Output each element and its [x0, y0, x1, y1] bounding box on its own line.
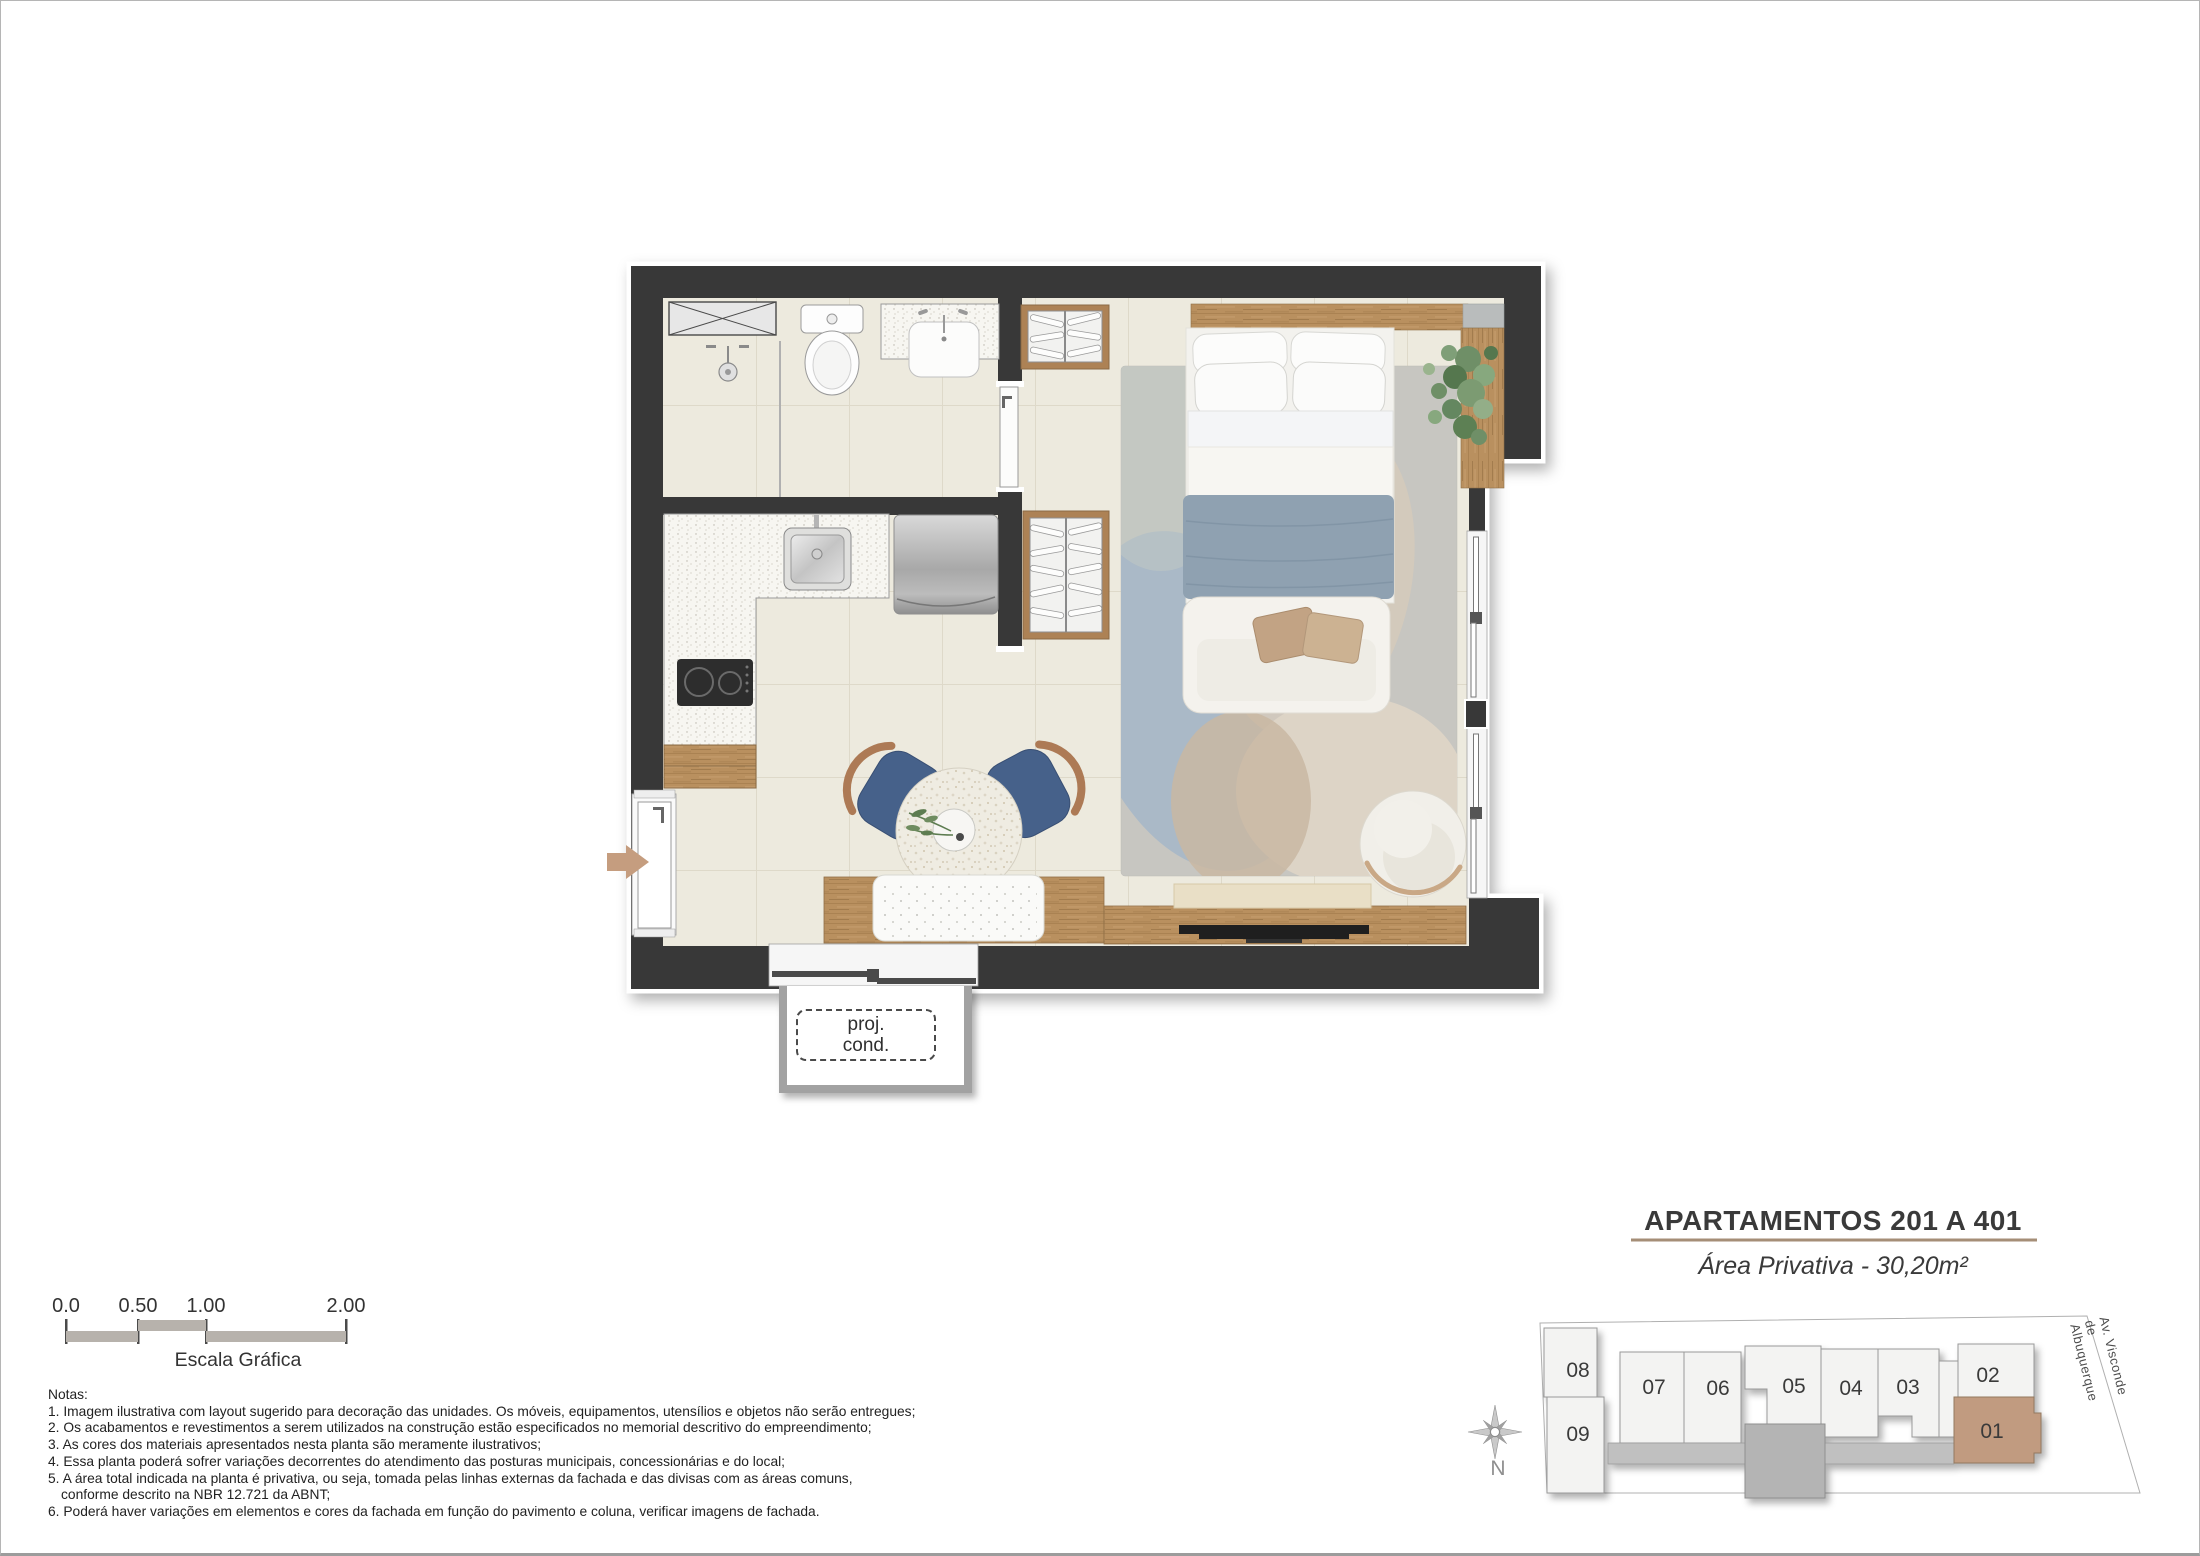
drawing-layer — [1, 1, 2200, 1556]
bedside-shelf — [1463, 304, 1504, 328]
note-line: 1. Imagem ilustrativa com layout sugerid… — [48, 1404, 1068, 1421]
vent-shaft — [669, 302, 776, 335]
note-line: 6. Poderá haver variações em elementos e… — [48, 1504, 1068, 1521]
tv-icon — [1179, 925, 1369, 934]
key-plan — [1540, 1316, 2140, 1498]
bed — [1183, 328, 1394, 603]
floor-plan — [631, 266, 1541, 989]
keyplan-unit-label-02: 02 — [1976, 1364, 1999, 1388]
table-vase — [933, 809, 975, 851]
notes-heading: Notas: — [48, 1387, 1068, 1404]
scale-bar-caption: Escala Gráfica — [175, 1349, 302, 1372]
keyplan-unit-label-09: 09 — [1566, 1423, 1589, 1447]
wardrobe-small — [1021, 305, 1109, 369]
keyplan-unit-label-06: 06 — [1706, 1377, 1729, 1401]
scale-bar-graphic — [65, 1319, 348, 1344]
note-line: 5. A área total indicada na planta é pri… — [48, 1471, 1068, 1488]
north-label: N — [1490, 1457, 1505, 1481]
compass-icon — [1468, 1405, 1522, 1459]
proj-line2: cond. — [843, 1035, 889, 1056]
page-title: APARTAMENTOS 201 A 401 — [1629, 1205, 2037, 1237]
note-line: 4. Essa planta poderá sofrer variações d… — [48, 1454, 1068, 1471]
kitchen-cabinet — [664, 745, 756, 788]
scale-tick-label-050: 0.50 — [119, 1295, 158, 1318]
right-window-run — [1465, 531, 1487, 898]
bed-blanket — [1183, 495, 1394, 599]
balcony-sliding-door — [769, 944, 978, 986]
note-line-continuation: conforme descrito na NBR 12.721 da ABNT; — [48, 1487, 1068, 1504]
scale-tick-label-100: 1.00 — [187, 1295, 226, 1318]
keyplan-unit-label-03: 03 — [1896, 1376, 1919, 1400]
fridge-icon — [894, 515, 998, 614]
window-bench — [824, 875, 1104, 943]
keyplan-unit-label-04: 04 — [1839, 1377, 1862, 1401]
notes-block: Notas: 1. Imagem ilustrativa com layout … — [48, 1387, 1068, 1521]
keyplan-unit-label-08: 08 — [1566, 1359, 1589, 1383]
wardrobe-large — [1023, 511, 1109, 639]
bathroom-door — [1000, 387, 1018, 487]
bed-headboard — [1191, 304, 1468, 330]
keyplan-unit-label-01: 01 — [1980, 1420, 2003, 1444]
scale-tick-label-0: 0.0 — [52, 1295, 80, 1318]
balcony-projection-label: proj. cond. — [796, 1009, 936, 1061]
toilet-icon — [801, 305, 863, 395]
keyplan-unit-label-05: 05 — [1782, 1375, 1805, 1399]
page: proj. cond. 0.0 0.50 1.00 2.00 Escala Gr… — [0, 0, 2200, 1556]
scale-tick-label-200: 2.00 — [327, 1295, 366, 1318]
page-subtitle: Área Privativa - 30,20m² — [1629, 1252, 2037, 1281]
proj-line1: proj. — [848, 1014, 885, 1035]
window-pier — [1465, 700, 1487, 728]
note-line: 2. Os acabamentos e revestimentos a sere… — [48, 1420, 1068, 1437]
keyplan-unit-label-07: 07 — [1642, 1376, 1665, 1400]
keyplan-core — [1745, 1424, 1825, 1498]
cooktop-icon — [677, 659, 753, 706]
note-line: 3. As cores dos materiais apresentados n… — [48, 1437, 1068, 1454]
armchair — [1360, 791, 1466, 897]
foot-sofa — [1183, 597, 1390, 713]
